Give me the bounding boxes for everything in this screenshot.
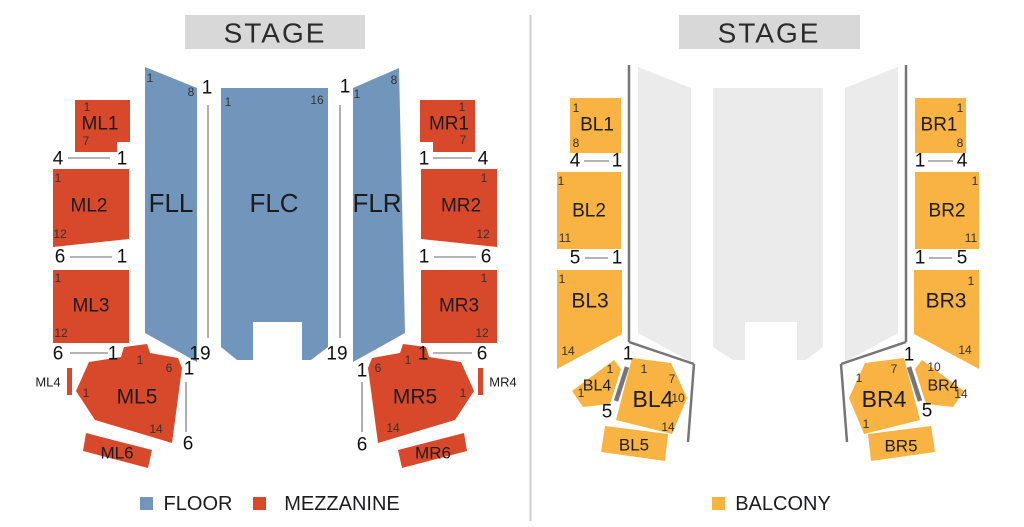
seat-number: 16 xyxy=(310,93,324,107)
stage-label-left: STAGE xyxy=(224,18,327,49)
legend-swatch-floor xyxy=(140,497,153,510)
row-number: 1 xyxy=(419,149,430,170)
seat-number: 8 xyxy=(391,73,398,87)
section-ML4-label: ML4 xyxy=(35,375,60,390)
seat-number: 1 xyxy=(558,174,565,188)
section-FLR-label: FLR xyxy=(352,188,401,218)
seat-number: 8 xyxy=(573,136,580,150)
row-number: 19 xyxy=(326,344,347,365)
seat-number: 1 xyxy=(83,386,90,400)
section-FLC[interactable] xyxy=(221,88,328,360)
section-ML5-label: ML5 xyxy=(117,386,158,409)
row-number: 1 xyxy=(340,77,351,98)
seat-number: 1 xyxy=(968,274,975,288)
seat-number: 11 xyxy=(965,231,978,245)
balcony-rail-line xyxy=(841,364,847,442)
section-BL5-label: BL5 xyxy=(619,436,649,455)
row-number: 1 xyxy=(612,248,623,269)
row-number: 1 xyxy=(357,361,368,382)
section-MR6-label: MR6 xyxy=(415,444,451,463)
seat-number: 1 xyxy=(863,417,870,431)
legend-swatch-mezzanine xyxy=(253,497,266,510)
row-number: 1 xyxy=(108,344,119,365)
seat-number: 1 xyxy=(459,100,466,114)
section-BL1-label: BL1 xyxy=(580,115,614,136)
seat-number: 10 xyxy=(671,391,685,405)
seat-number: 1 xyxy=(460,386,467,400)
section-FLL-label: FLL xyxy=(149,188,194,218)
stage-label-right: STAGE xyxy=(718,18,821,49)
seat-number: 1 xyxy=(481,171,488,185)
section-ML4[interactable] xyxy=(67,368,72,395)
seat-number: 6 xyxy=(375,361,382,375)
row-number: 4 xyxy=(53,149,64,170)
seat-number: 1 xyxy=(559,272,566,286)
row-number: 4 xyxy=(478,149,489,170)
floor-outline-right xyxy=(845,67,898,362)
section-BL4_BIG-label: BL4 xyxy=(633,386,674,412)
section-MR3-label: MR3 xyxy=(439,296,479,317)
row-number: 4 xyxy=(570,151,581,172)
seat-number: 1 xyxy=(147,71,154,85)
seat-number: 1 xyxy=(578,386,585,400)
floor-outline-center xyxy=(713,88,823,360)
seat-number: 14 xyxy=(561,344,575,358)
row-number: 6 xyxy=(481,247,492,268)
seat-number: 8 xyxy=(957,136,964,150)
seat-number: 1 xyxy=(972,174,979,188)
row-number: 1 xyxy=(419,247,430,268)
row-number: 6 xyxy=(183,434,194,455)
section-BL2-label: BL2 xyxy=(572,201,606,222)
seat-number: 7 xyxy=(669,372,676,386)
legend-swatch-balcony xyxy=(712,497,725,510)
seat-number: 1 xyxy=(137,353,144,367)
section-MR2-label: MR2 xyxy=(441,196,481,217)
row-number: 1 xyxy=(915,248,926,269)
legend-label-balcony: BALCONY xyxy=(735,493,831,515)
section-BR3-label: BR3 xyxy=(926,290,967,313)
floor-outline-left xyxy=(638,67,691,362)
seat-number: 1 xyxy=(957,101,964,115)
seat-number: 6 xyxy=(166,361,173,375)
seat-number: 11 xyxy=(559,231,572,245)
seat-number: 1 xyxy=(354,87,361,101)
legend-label-floor: FLOOR xyxy=(164,493,233,515)
section-BL4_SMALL-label: BL4 xyxy=(583,378,612,395)
row-number: 6 xyxy=(55,247,66,268)
section-MR4-label: MR4 xyxy=(489,375,516,390)
seating-map-canvas: STAGESTAGEFLOORMEZZANINEBALCONYFLLFLCFLR… xyxy=(0,0,1024,527)
seat-number: 1 xyxy=(607,362,614,376)
seat-number: 1 xyxy=(641,362,648,376)
row-number: 1 xyxy=(623,344,634,365)
section-BR5-label: BR5 xyxy=(884,437,917,456)
row-number: 4 xyxy=(957,151,968,172)
row-number: 5 xyxy=(957,248,968,269)
row-number: 1 xyxy=(418,344,429,365)
seat-number: 14 xyxy=(958,343,972,357)
section-MR4[interactable] xyxy=(478,368,483,395)
section-MR1-label: MR1 xyxy=(429,114,469,135)
seat-number: 1 xyxy=(55,271,62,285)
seat-number: 1 xyxy=(55,171,62,185)
section-ML1-label: ML1 xyxy=(82,114,119,135)
section-BR4_BIG-label: BR4 xyxy=(862,386,907,412)
section-BL3-label: BL3 xyxy=(571,290,608,313)
seat-number: 8 xyxy=(188,85,195,99)
section-MR5-label: MR5 xyxy=(393,386,437,409)
row-number: 1 xyxy=(117,149,128,170)
seat-number: 7 xyxy=(83,134,90,148)
row-number: 1 xyxy=(904,345,915,366)
section-ML3-label: ML3 xyxy=(73,296,110,317)
seat-number: 1 xyxy=(405,353,412,367)
seat-number: 1 xyxy=(84,100,91,114)
row-number: 1 xyxy=(202,78,213,99)
seat-number: 10 xyxy=(927,360,941,374)
section-BR2-label: BR2 xyxy=(929,201,966,222)
seat-number: 7 xyxy=(460,133,467,147)
row-number: 1 xyxy=(184,359,195,380)
seat-number: 7 xyxy=(891,362,898,376)
section-BR1-label: BR1 xyxy=(921,115,958,136)
seat-number: 14 xyxy=(661,420,675,434)
seat-number: 12 xyxy=(54,326,68,340)
section-FLC-label: FLC xyxy=(249,188,298,218)
row-number: 1 xyxy=(612,151,623,172)
section-ML6-label: ML6 xyxy=(100,444,133,463)
section-ML2-label: ML2 xyxy=(71,196,108,217)
legend-label-mezzanine: MEZZANINE xyxy=(284,493,400,515)
row-number: 1 xyxy=(117,247,128,268)
seat-number: 14 xyxy=(149,422,163,436)
row-number: 1 xyxy=(915,151,926,172)
seat-number: 14 xyxy=(386,421,400,435)
seating-chart-page: STAGESTAGEFLOORMEZZANINEBALCONYFLLFLCFLR… xyxy=(0,0,1024,527)
seat-number: 12 xyxy=(475,326,489,340)
row-number: 5 xyxy=(570,248,581,269)
seat-number: 12 xyxy=(53,227,67,241)
row-number: 6 xyxy=(477,344,488,365)
row-number: 6 xyxy=(53,344,64,365)
row-number: 5 xyxy=(602,402,613,423)
seat-number: 1 xyxy=(573,101,580,115)
row-number: 6 xyxy=(357,435,368,456)
row-number: 5 xyxy=(922,401,933,422)
seat-number: 1 xyxy=(481,271,488,285)
balcony-rail-line xyxy=(688,364,694,442)
seat-number: 14 xyxy=(954,387,968,401)
seat-number: 12 xyxy=(476,227,490,241)
seat-number: 1 xyxy=(225,95,232,109)
seat-number: 1 xyxy=(856,371,863,385)
